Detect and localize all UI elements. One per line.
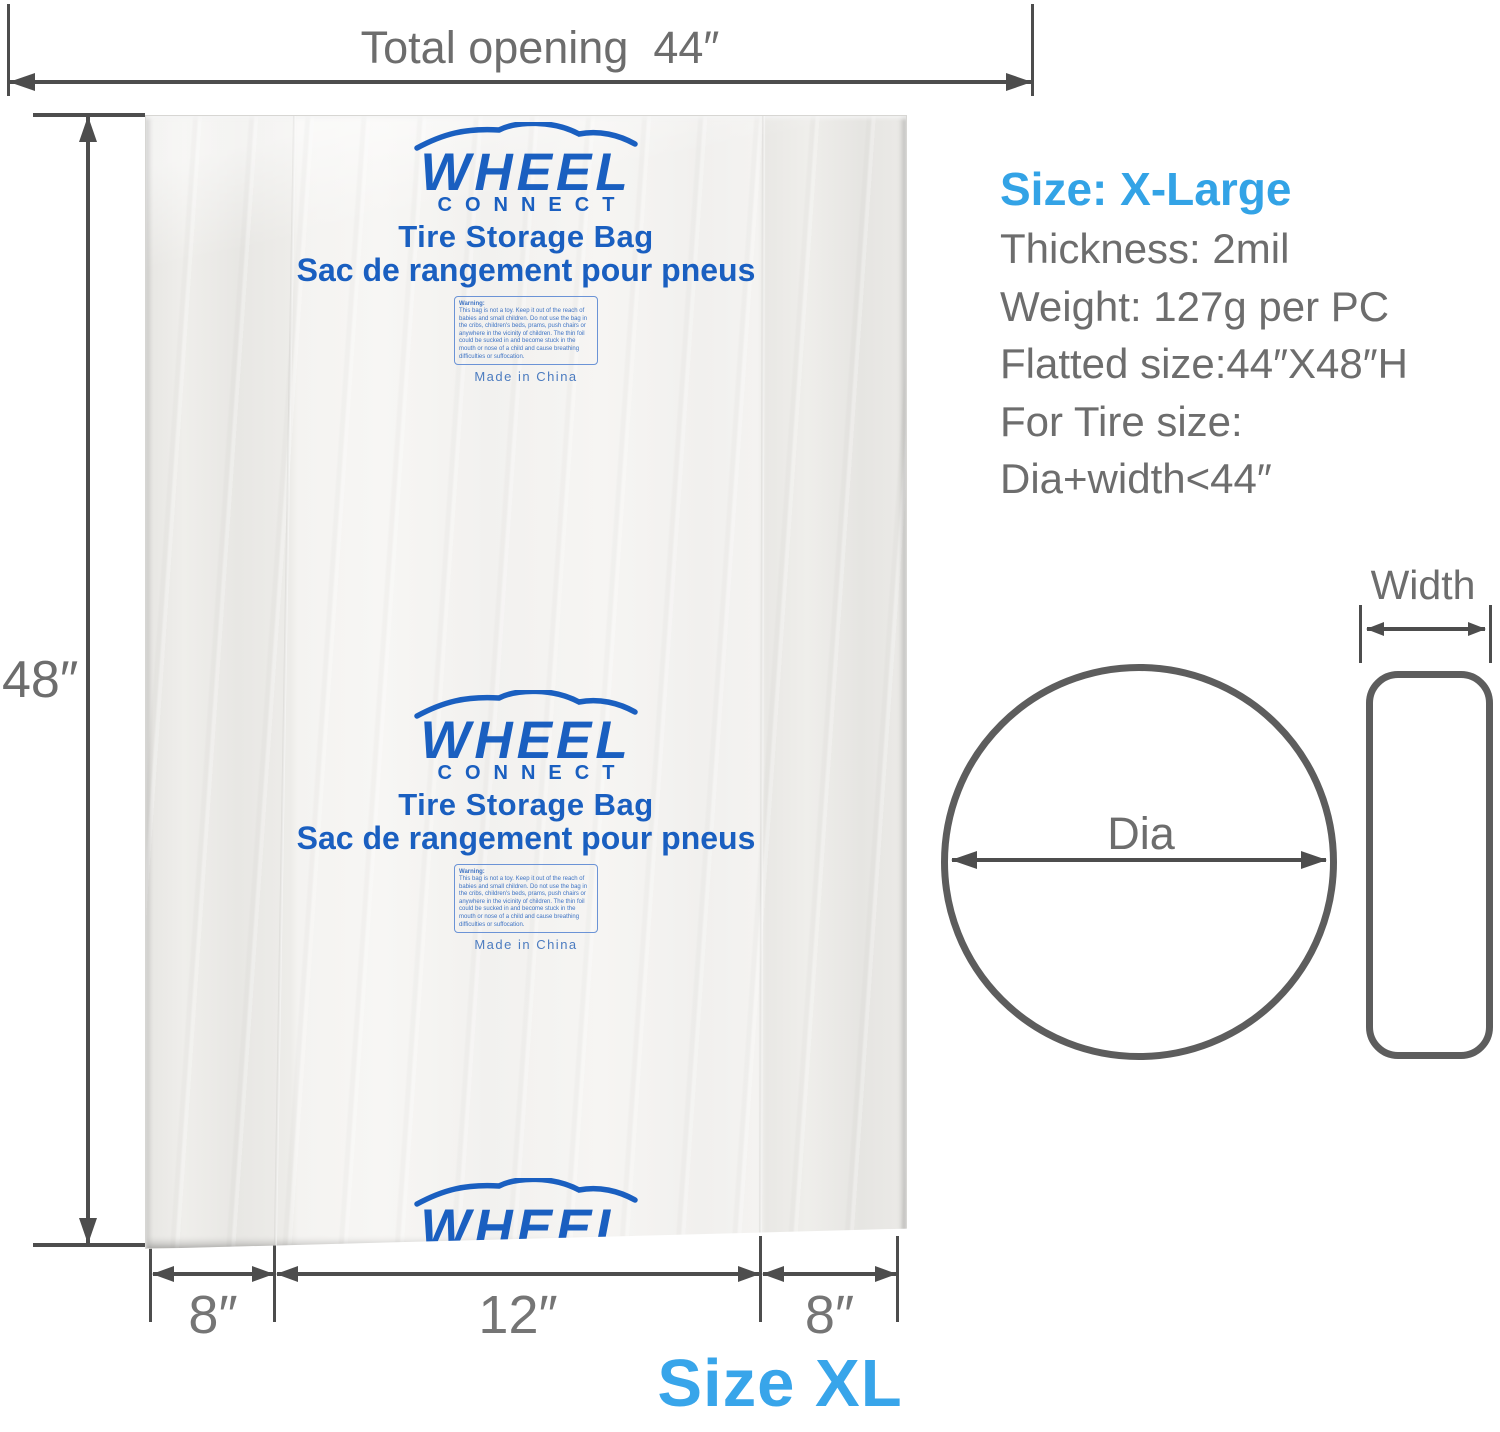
product-name-en: Tire Storage Bag: [291, 223, 761, 250]
warning-box: Warning: This bag is not a toy. Keep it …: [454, 296, 598, 365]
warning-box: Warning: This bag is not a toy. Keep it …: [454, 864, 598, 933]
warning-title: Warning:: [459, 300, 593, 308]
bottom-dim-label-middle: 12″: [276, 1284, 760, 1346]
warning-title: Warning:: [459, 868, 593, 876]
brand-subword: CONNECT: [291, 765, 761, 782]
product-name-fr: Sac de rangement pour pneus: [291, 824, 761, 853]
bag-print-bottom-partial: WHEEL: [291, 1178, 761, 1248]
spec-thickness: Thickness: 2mil: [1000, 220, 1480, 278]
product-name-fr: Sac de rangement pour pneus: [291, 256, 761, 285]
origin-label: Made in China: [291, 937, 761, 952]
tire-front-view-circle: [941, 664, 1337, 1060]
size-caption: Size XL: [620, 1345, 940, 1422]
bottom-dim-label-right: 8″: [762, 1284, 897, 1346]
width-dim-right-tick: [1489, 605, 1492, 663]
spec-size-label: Size: X-Large: [1000, 158, 1480, 220]
spec-block: Size: X-Large Thickness: 2mil Weight: 12…: [1000, 158, 1480, 508]
product-dimension-diagram: Total opening 44″ 48″ WHEEL CONNECT Tire…: [0, 0, 1500, 1432]
top-dim-arrow: [10, 80, 1031, 84]
spec-flatted-size: Flatted size:44″X48″H: [1000, 335, 1480, 393]
spec-dia-width: Dia+width<44″: [1000, 450, 1480, 508]
bottom-dim-arrow-right: [763, 1272, 896, 1276]
tire-side-view-rect: [1366, 671, 1493, 1059]
bag-print-middle: WHEEL CONNECT Tire Storage Bag Sac de ra…: [291, 690, 761, 952]
width-label: Width: [1352, 562, 1494, 609]
top-dim-label: Total opening 44″: [120, 22, 960, 74]
brand-subword: CONNECT: [291, 197, 761, 214]
origin-label: Made in China: [291, 369, 761, 384]
dia-arrow: [952, 858, 1326, 862]
bottom-dim-arrow-left: [153, 1272, 273, 1276]
bottom-dim-label-left: 8″: [152, 1284, 274, 1346]
spec-for-tire-size: For Tire size:: [1000, 393, 1480, 451]
warning-text: This bag is not a toy. Keep it out of th…: [459, 876, 593, 929]
warning-text: This bag is not a toy. Keep it out of th…: [459, 308, 593, 361]
bottom-dim-arrow-middle: [277, 1272, 759, 1276]
spec-weight: Weight: 127g per PC: [1000, 278, 1480, 336]
left-dim-label: 48″: [2, 650, 82, 710]
brand-wordmark: WHEEL: [291, 722, 761, 760]
product-name-en: Tire Storage Bag: [291, 791, 761, 818]
brand-wordmark: WHEEL: [291, 1210, 761, 1248]
bag-print-upper: WHEEL CONNECT Tire Storage Bag Sac de ra…: [291, 122, 761, 384]
tire-storage-bag-photo: WHEEL CONNECT Tire Storage Bag Sac de ra…: [145, 115, 907, 1249]
brand-wordmark: WHEEL: [291, 154, 761, 192]
width-dim-left-tick: [1359, 605, 1362, 663]
width-dim-arrow: [1367, 627, 1485, 631]
dia-label: Dia: [1086, 808, 1196, 860]
left-dim-arrow: [86, 117, 90, 1243]
